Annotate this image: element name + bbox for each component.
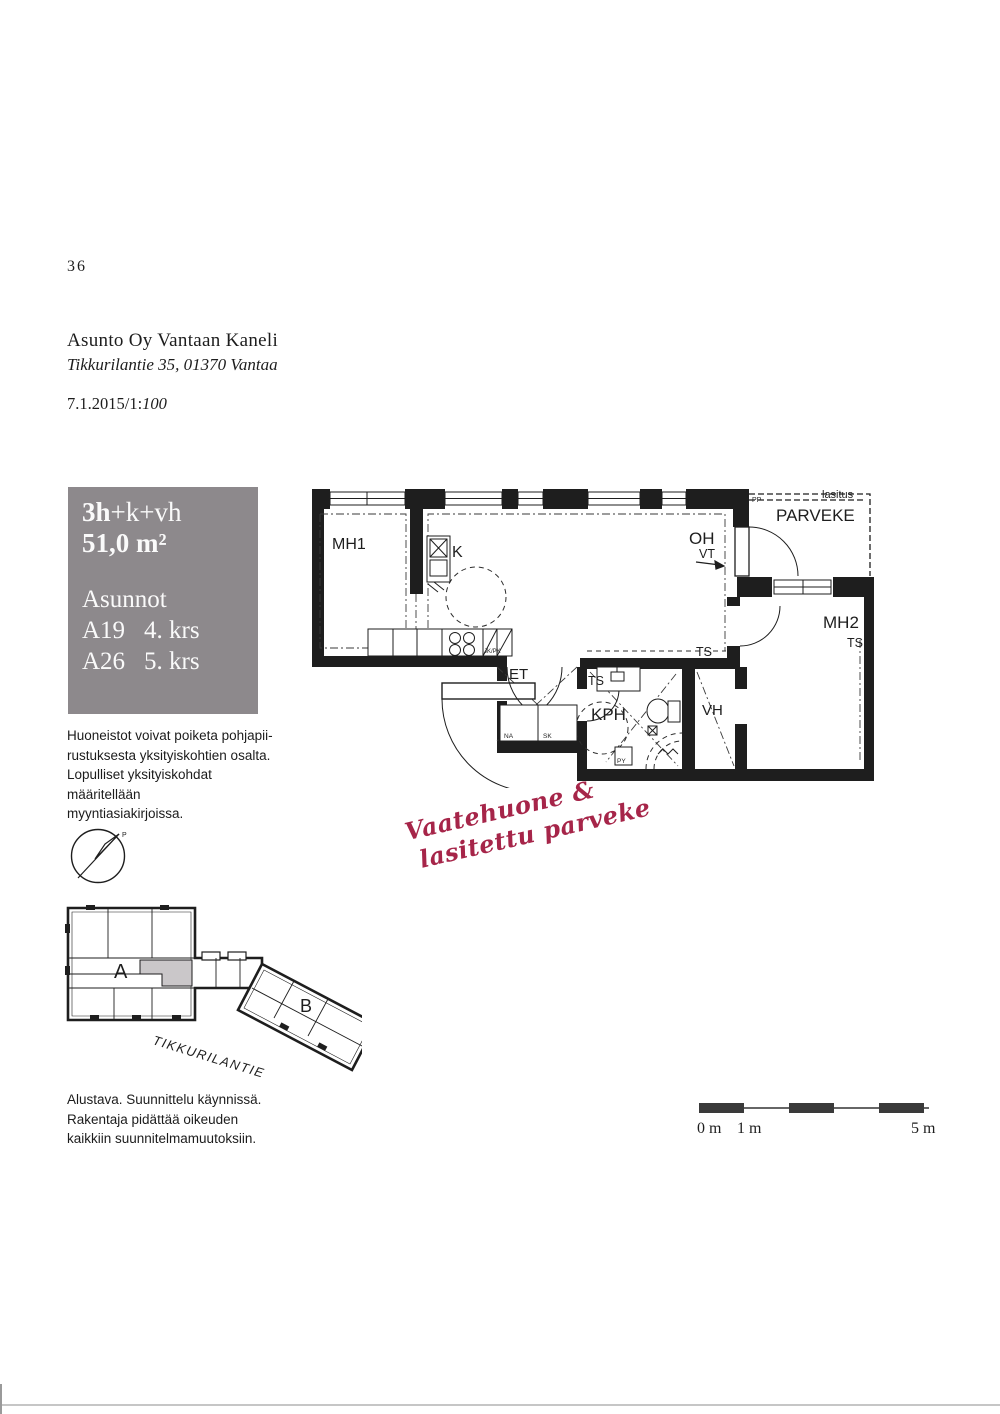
- scan-corner-artifact: [0, 1384, 2, 1414]
- scale-label-0m: 0 m: [697, 1120, 722, 1137]
- document-title: Asunto Oy Vantaan Kaneli: [67, 330, 278, 352]
- apartment-row: A26 5. krs: [82, 646, 258, 677]
- street-label: TIKKURILANTIE: [151, 1033, 267, 1081]
- scale-bar: 0 m 1 m 5 m: [697, 1096, 937, 1140]
- label-py: PY: [617, 758, 626, 765]
- date-and-scale: 7.1.2015/1:100: [67, 394, 167, 414]
- preliminary-note: Alustava. Suunnittelu käynnissä. Rakenta…: [67, 1090, 297, 1149]
- room-label-k: K: [452, 544, 463, 561]
- room-label-oh: OH: [689, 529, 715, 548]
- compass-icon: P: [68, 826, 132, 890]
- page-number: 36: [67, 258, 87, 276]
- label-ts-oh: TS: [696, 645, 712, 659]
- label-pp: PP: [752, 497, 762, 504]
- label-ppkkr: PPK/KR: [581, 742, 587, 765]
- floor-plan: MH1 K OH VT PARVEKE lasitus PP MH2 TS ET…: [306, 480, 886, 788]
- site-plan: A B TIKKURILANTIE: [56, 896, 362, 1082]
- room-label-et: ET: [509, 666, 528, 683]
- scale-text: 100: [142, 394, 167, 413]
- label-ts-mh2: TS: [847, 636, 863, 650]
- kitchen-fixtures: [368, 536, 512, 656]
- apartment-row: A19 4. krs: [82, 615, 258, 646]
- preliminary-line: Rakentaja pidättää oikeuden: [67, 1110, 297, 1130]
- label-lasitus: lasitus: [822, 489, 854, 501]
- room-label-mh2: MH2: [823, 613, 859, 632]
- site-building-a: [65, 905, 262, 1020]
- disclaimer-line: Huoneistot voivat poiketa pohjapii-: [67, 726, 287, 746]
- site-label-a: A: [114, 961, 128, 983]
- apartment-type: 3h+k+vh: [82, 497, 258, 527]
- apartment-floor: 5. krs: [144, 646, 200, 677]
- label-ts-kph: TS: [588, 674, 604, 688]
- room-label-kph: KPH: [591, 705, 626, 724]
- room-label-vh: VH: [702, 702, 723, 719]
- apartment-floor: 4. krs: [144, 615, 200, 646]
- compass-north-label: P: [122, 832, 127, 839]
- label-na: NA: [504, 733, 514, 740]
- room-label-mh1: MH1: [332, 536, 366, 553]
- disclaimer-line: rustuksesta yksityiskohtien osalta.: [67, 746, 287, 766]
- disclaimer-line: Lopulliset yksityiskohdat määritellään: [67, 765, 287, 804]
- site-label-b: B: [300, 996, 312, 1016]
- room-label-parveke: PARVEKE: [776, 506, 855, 525]
- label-vt: VT: [699, 547, 715, 561]
- label-jkpk: JK/PK: [484, 649, 501, 655]
- label-sk: SK: [543, 733, 552, 740]
- scale-label-1m: 1 m: [737, 1120, 762, 1137]
- disclaimer-note: Huoneistot voivat poiketa pohjapii- rust…: [67, 726, 287, 824]
- preliminary-line: kaikkiin suunnitelmamuutoksiin.: [67, 1129, 297, 1149]
- site-building-b: [238, 964, 362, 1070]
- vt-arrow: [696, 561, 724, 569]
- apartment-id: A26: [82, 646, 144, 677]
- apartment-area: 51,0 m²: [82, 527, 258, 559]
- preliminary-line: Alustava. Suunnittelu käynnissä.: [67, 1090, 297, 1110]
- apartment-type-bold: 3h: [82, 497, 111, 527]
- scale-label-5m: 5 m: [911, 1120, 936, 1137]
- disclaimer-line: myyntiasiakirjoissa.: [67, 804, 287, 824]
- apartment-id: A19: [82, 615, 144, 646]
- apartment-list-title: Asunnot: [82, 585, 258, 615]
- date-text: 7.1.2015/1:: [67, 394, 142, 413]
- document-address: Tikkurilantie 35, 01370 Vantaa: [67, 355, 278, 375]
- scan-edge-artifact: [0, 1404, 1000, 1406]
- apartment-info-box: 3h+k+vh 51,0 m² Asunnot A19 4. krs A26 5…: [68, 487, 258, 714]
- apartment-type-rest: +k+vh: [111, 497, 182, 527]
